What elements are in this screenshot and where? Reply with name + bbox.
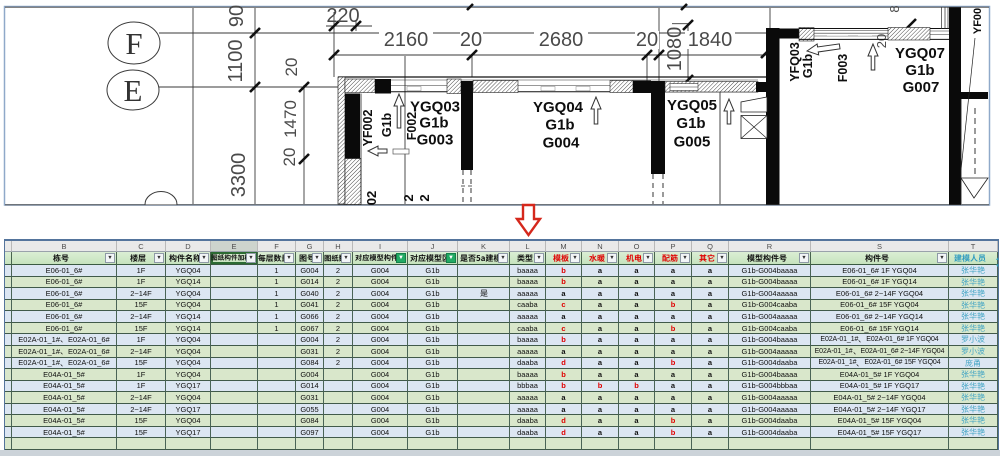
svg-text:G1b: G1b [801,53,815,78]
svg-text:2: 2 [401,194,416,201]
svg-text:1840: 1840 [688,29,733,51]
svg-text:G1b: G1b [676,115,705,132]
svg-text:1470: 1470 [281,100,300,138]
svg-text:F002: F002 [405,112,419,141]
svg-text:F: F [125,26,142,61]
svg-text:YGQ05: YGQ05 [667,97,717,114]
svg-text:1100: 1100 [225,39,247,82]
svg-text:90: 90 [226,5,248,27]
svg-text:YGQ04: YGQ04 [533,99,584,116]
svg-text:G004: G004 [543,135,580,152]
svg-text:YF00: YF00 [972,8,984,34]
svg-text:2160: 2160 [384,29,429,51]
svg-text:G1b: G1b [905,62,934,79]
svg-text:20: 20 [460,29,482,51]
svg-text:220: 220 [326,5,359,27]
svg-text:YF002: YF002 [361,110,375,147]
svg-text:E: E [124,73,143,108]
svg-text:G1b: G1b [380,112,394,137]
svg-text:1080: 1080 [664,27,686,72]
svg-text:F003: F003 [836,54,850,83]
svg-text:G1b: G1b [545,117,574,134]
svg-text:20: 20 [282,58,301,77]
svg-text:G1b: G1b [419,115,448,132]
svg-text:2680: 2680 [539,29,584,51]
svg-text:YGQ07: YGQ07 [895,45,945,62]
svg-text:G007: G007 [903,79,940,96]
svg-text:G003: G003 [417,132,454,149]
svg-text:02: 02 [364,191,379,205]
svg-text:8: 8 [887,5,902,12]
svg-text:G005: G005 [674,134,711,151]
svg-text:2: 2 [417,194,432,201]
svg-text:20: 20 [636,29,658,51]
svg-text:20: 20 [280,148,299,167]
svg-text:YFQ03: YFQ03 [788,42,802,82]
svg-text:3300: 3300 [228,153,250,198]
